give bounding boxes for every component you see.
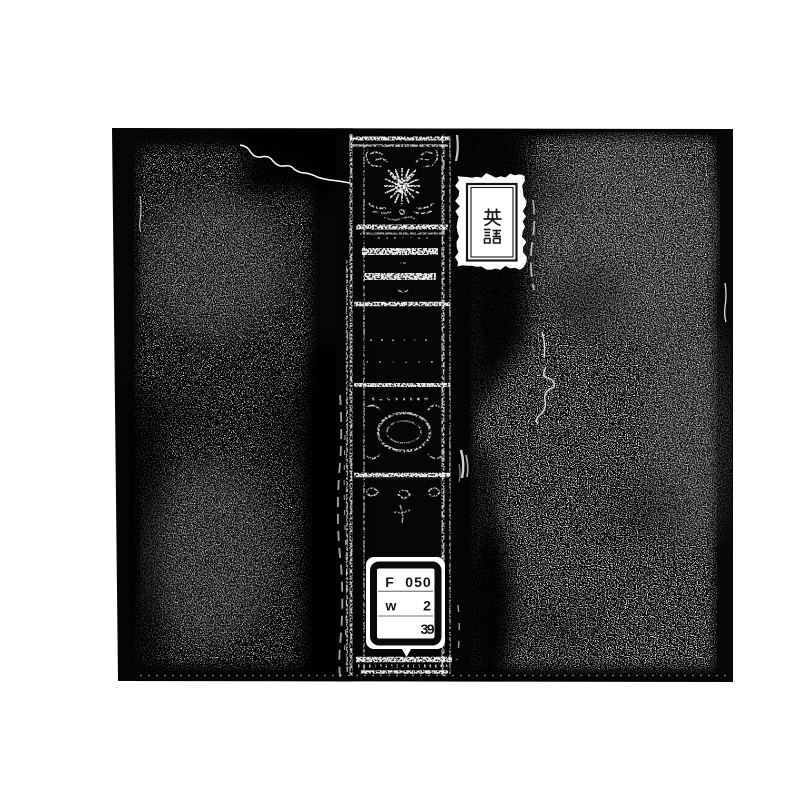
svg-text:9: 9 xyxy=(427,621,435,637)
svg-text:w: w xyxy=(385,598,397,614)
svg-text:0: 0 xyxy=(405,574,413,590)
svg-text:0: 0 xyxy=(423,574,431,590)
svg-text:F: F xyxy=(385,574,394,590)
svg-text:5: 5 xyxy=(414,574,422,590)
svg-text:2: 2 xyxy=(423,598,431,614)
